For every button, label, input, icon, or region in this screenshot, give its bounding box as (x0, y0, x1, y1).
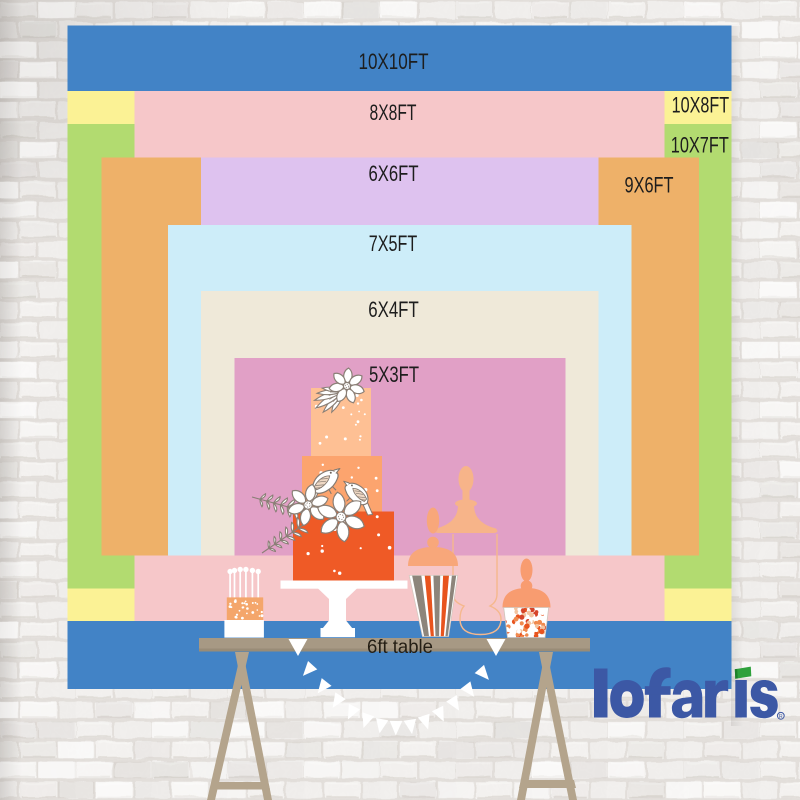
svg-text:R: R (779, 714, 783, 720)
svg-text:6X4FT: 6X4FT (368, 297, 419, 322)
svg-text:9X6FT: 9X6FT (625, 173, 674, 198)
svg-text:10X8FT: 10X8FT (672, 93, 730, 118)
svg-text:5X3FT: 5X3FT (369, 362, 419, 387)
svg-text:6X6FT: 6X6FT (369, 161, 419, 186)
svg-text:10X7FT: 10X7FT (671, 133, 729, 158)
svg-text:10X10FT: 10X10FT (359, 49, 429, 74)
svg-text:8X8FT: 8X8FT (370, 100, 417, 125)
svg-text:7X5FT: 7X5FT (369, 231, 418, 256)
svg-text:6ft table: 6ft table (367, 636, 433, 658)
